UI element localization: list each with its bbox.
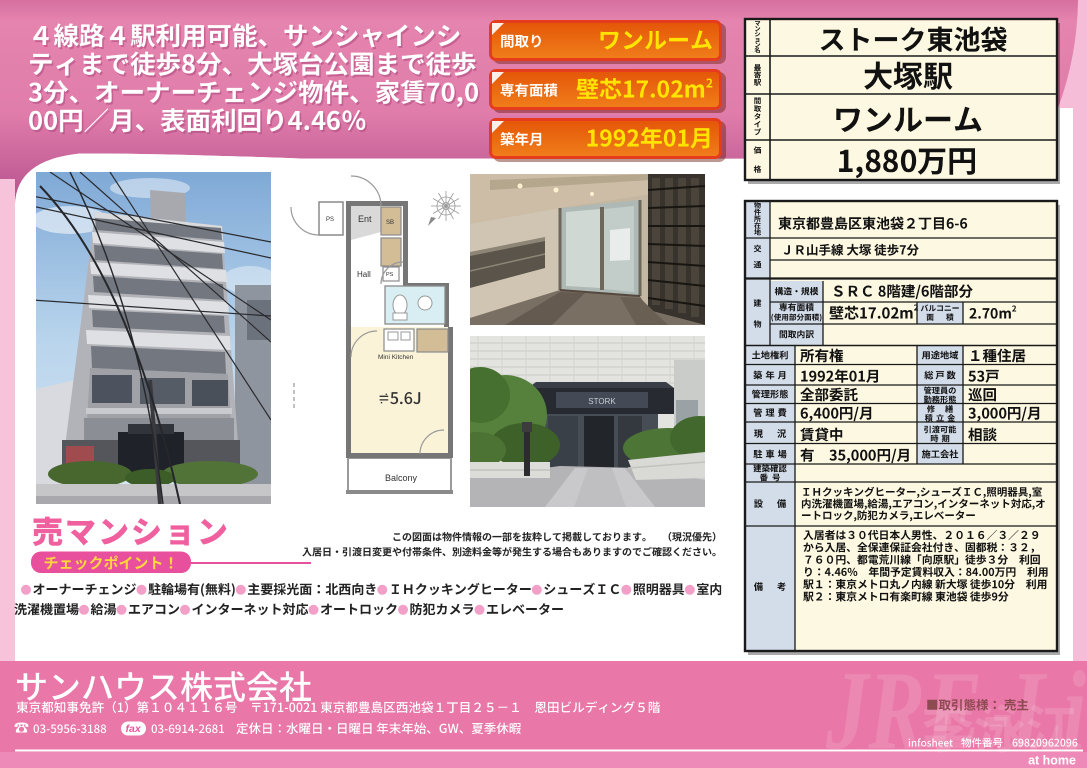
svg-text:Ent: Ent <box>358 214 372 224</box>
svg-text:Hall: Hall <box>357 270 371 279</box>
svg-text:Balcony: Balcony <box>385 473 418 483</box>
svg-text:Mini Kitchen: Mini Kitchen <box>378 354 414 361</box>
svg-text:fax: fax <box>126 723 142 735</box>
svg-text:at home: at home <box>1028 754 1076 768</box>
svg-text:PS: PS <box>326 217 334 223</box>
svg-text:PS: PS <box>386 272 394 278</box>
svg-text:SB: SB <box>386 220 394 226</box>
svg-text:STORK: STORK <box>588 397 616 406</box>
